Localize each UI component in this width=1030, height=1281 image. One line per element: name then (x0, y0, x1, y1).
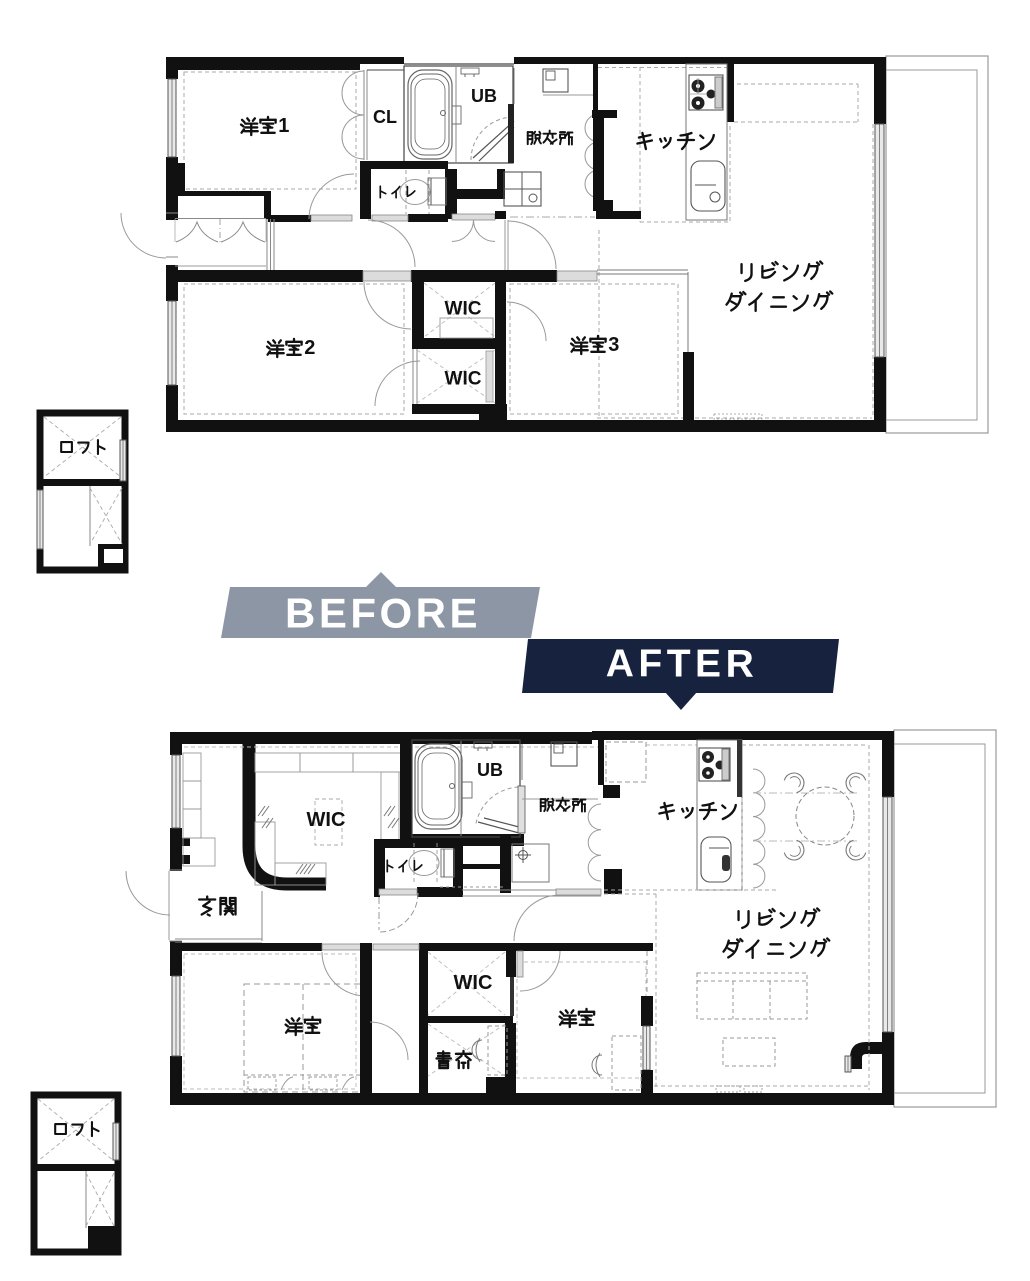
svg-text:UB: UB (477, 760, 503, 780)
svg-text:1: 1 (278, 115, 289, 137)
svg-text:WIC: WIC (445, 299, 482, 320)
svg-text:WIC: WIC (307, 809, 346, 831)
svg-text:BEFORE: BEFORE (285, 590, 481, 637)
svg-text:WIC: WIC (445, 369, 482, 390)
svg-text:CL: CL (373, 107, 397, 127)
svg-text:AFTER: AFTER (606, 643, 759, 686)
svg-text:2: 2 (304, 337, 315, 359)
svg-text:UB: UB (471, 86, 497, 106)
svg-text:3: 3 (608, 334, 619, 356)
svg-text:WIC: WIC (454, 972, 493, 994)
